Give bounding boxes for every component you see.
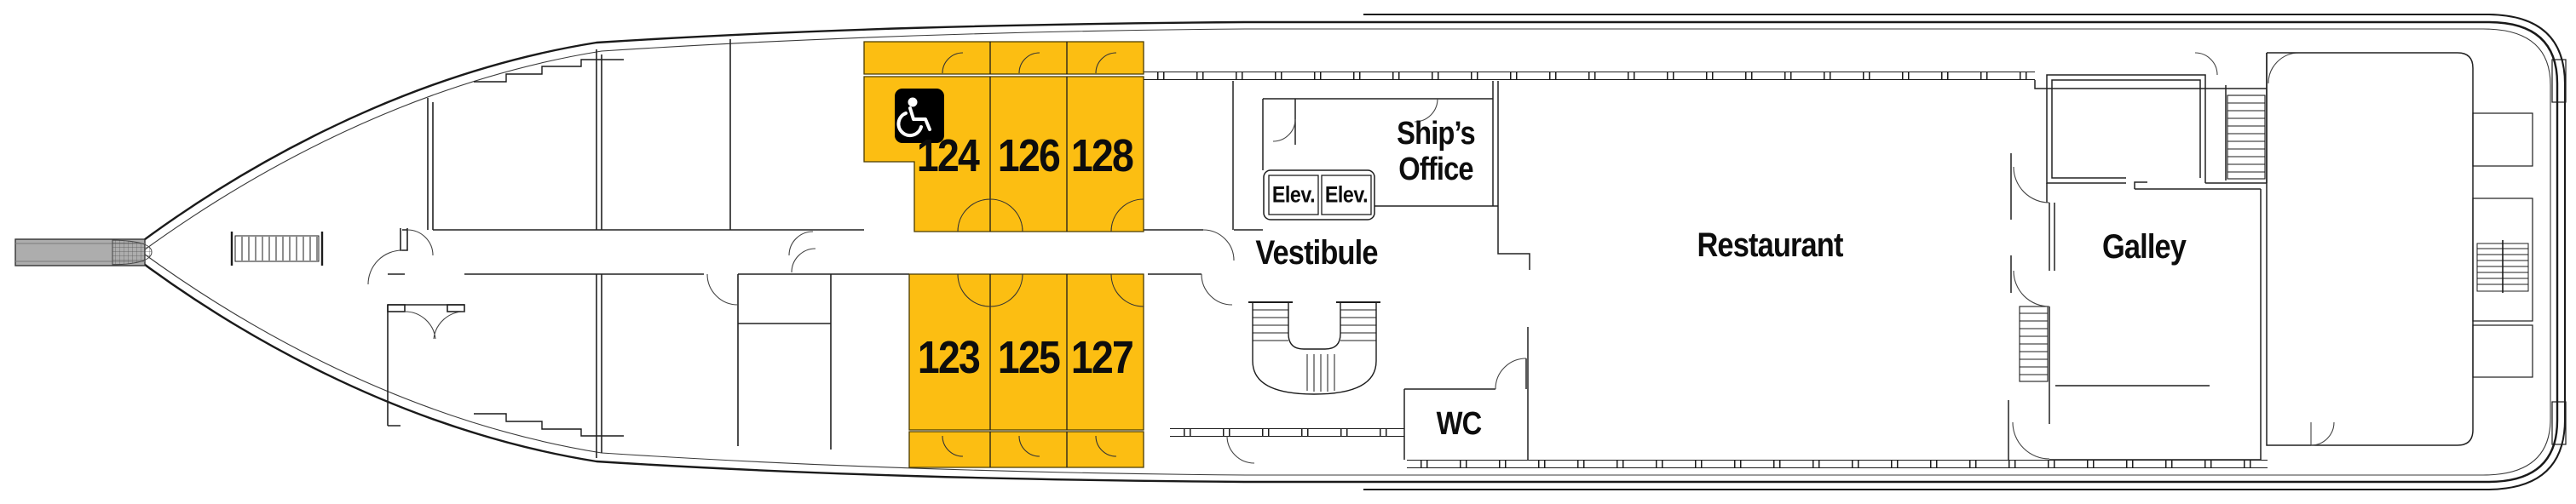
stern-stairs <box>2477 240 2528 293</box>
cabin-125-label: 125 <box>998 335 1059 381</box>
wc-label: WC <box>1437 408 1482 440</box>
vestibule-stairs <box>1248 302 1380 394</box>
gangway <box>15 239 152 266</box>
elevator-2-label[interactable]: Elev. <box>1325 184 1368 207</box>
ship-deck-plan: 124 126 128 123 125 127 Vestibule Ship’s… <box>0 0 2576 504</box>
forward-stairs <box>232 232 322 266</box>
vestibule-label: Vestibule <box>1255 236 1377 270</box>
cabin-dividers <box>990 42 1067 467</box>
elevator-1-label[interactable]: Elev. <box>1272 184 1315 207</box>
ships-office-line2: Office <box>1397 152 1475 188</box>
restaurant-label: Restaurant <box>1697 228 1842 262</box>
cabin-128-label: 128 <box>1071 133 1132 179</box>
aft-room <box>2267 53 2473 445</box>
forward-walls <box>388 39 1263 458</box>
cabin-door-arcs <box>942 53 1144 456</box>
cabin-123-label: 123 <box>918 335 979 381</box>
stern-alcoves <box>2473 113 2533 377</box>
cabin-126-label: 126 <box>998 133 1059 179</box>
ships-office-label: Ship’s Office <box>1397 117 1475 188</box>
galley-label: Galley <box>2102 230 2186 264</box>
cabin-127-label: 127 <box>1071 335 1132 381</box>
ships-office-line1: Ship’s <box>1397 117 1475 152</box>
bow-hatch-pad <box>112 240 152 265</box>
cabin-124-label: 124 <box>917 133 978 179</box>
